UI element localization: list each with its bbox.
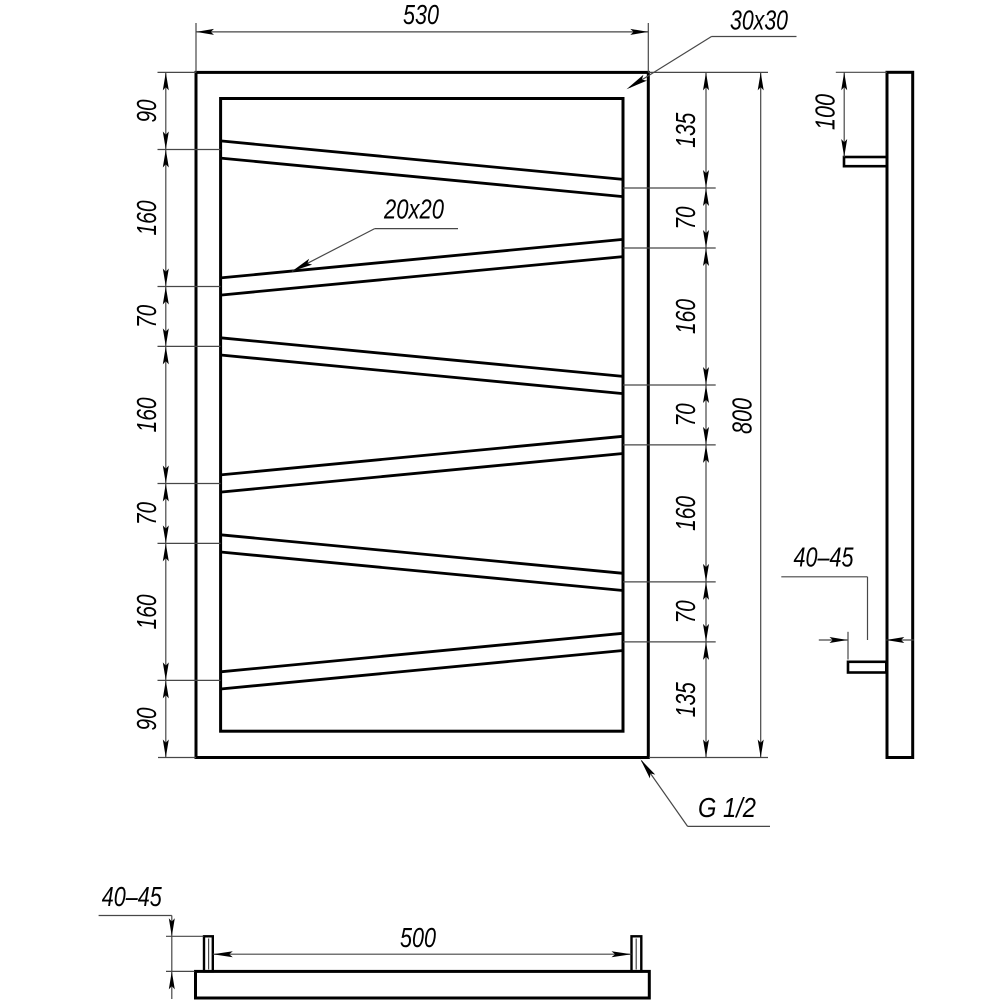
svg-text:70: 70 — [131, 502, 162, 525]
svg-text:135: 135 — [670, 682, 701, 717]
svg-text:100: 100 — [810, 94, 841, 130]
svg-text:70: 70 — [670, 206, 701, 229]
svg-text:90: 90 — [131, 99, 162, 122]
svg-text:160: 160 — [670, 299, 701, 334]
svg-text:G 1/2: G 1/2 — [698, 792, 756, 823]
svg-text:160: 160 — [670, 496, 701, 531]
svg-text:70: 70 — [670, 600, 701, 623]
svg-text:20x20: 20x20 — [383, 194, 444, 225]
svg-text:160: 160 — [131, 397, 162, 432]
svg-text:530: 530 — [403, 0, 439, 30]
svg-text:800: 800 — [727, 398, 758, 434]
svg-text:40–45: 40–45 — [794, 542, 854, 573]
svg-text:70: 70 — [670, 403, 701, 426]
svg-text:90: 90 — [131, 707, 162, 730]
svg-text:500: 500 — [400, 922, 436, 953]
svg-text:135: 135 — [670, 112, 701, 147]
svg-text:30x30: 30x30 — [730, 5, 788, 36]
svg-text:160: 160 — [131, 200, 162, 235]
svg-text:70: 70 — [131, 305, 162, 328]
svg-text:160: 160 — [131, 594, 162, 629]
svg-text:40–45: 40–45 — [102, 881, 162, 912]
